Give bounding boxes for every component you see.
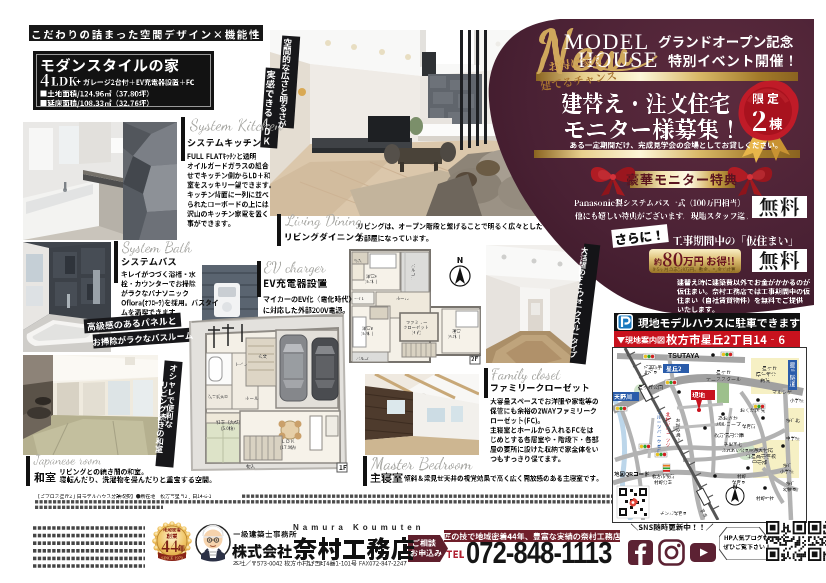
svg-text:Namura Koumuten: Namura Koumuten [293, 523, 425, 532]
svg-text:SINCE 1979: SINCE 1979 [161, 556, 183, 561]
svg-text:072-848-1113: 072-848-1113 [466, 536, 612, 571]
svg-text:HOUSE: HOUSE [578, 47, 659, 72]
svg-text:TSUTAYA: TSUTAYA [668, 353, 699, 360]
